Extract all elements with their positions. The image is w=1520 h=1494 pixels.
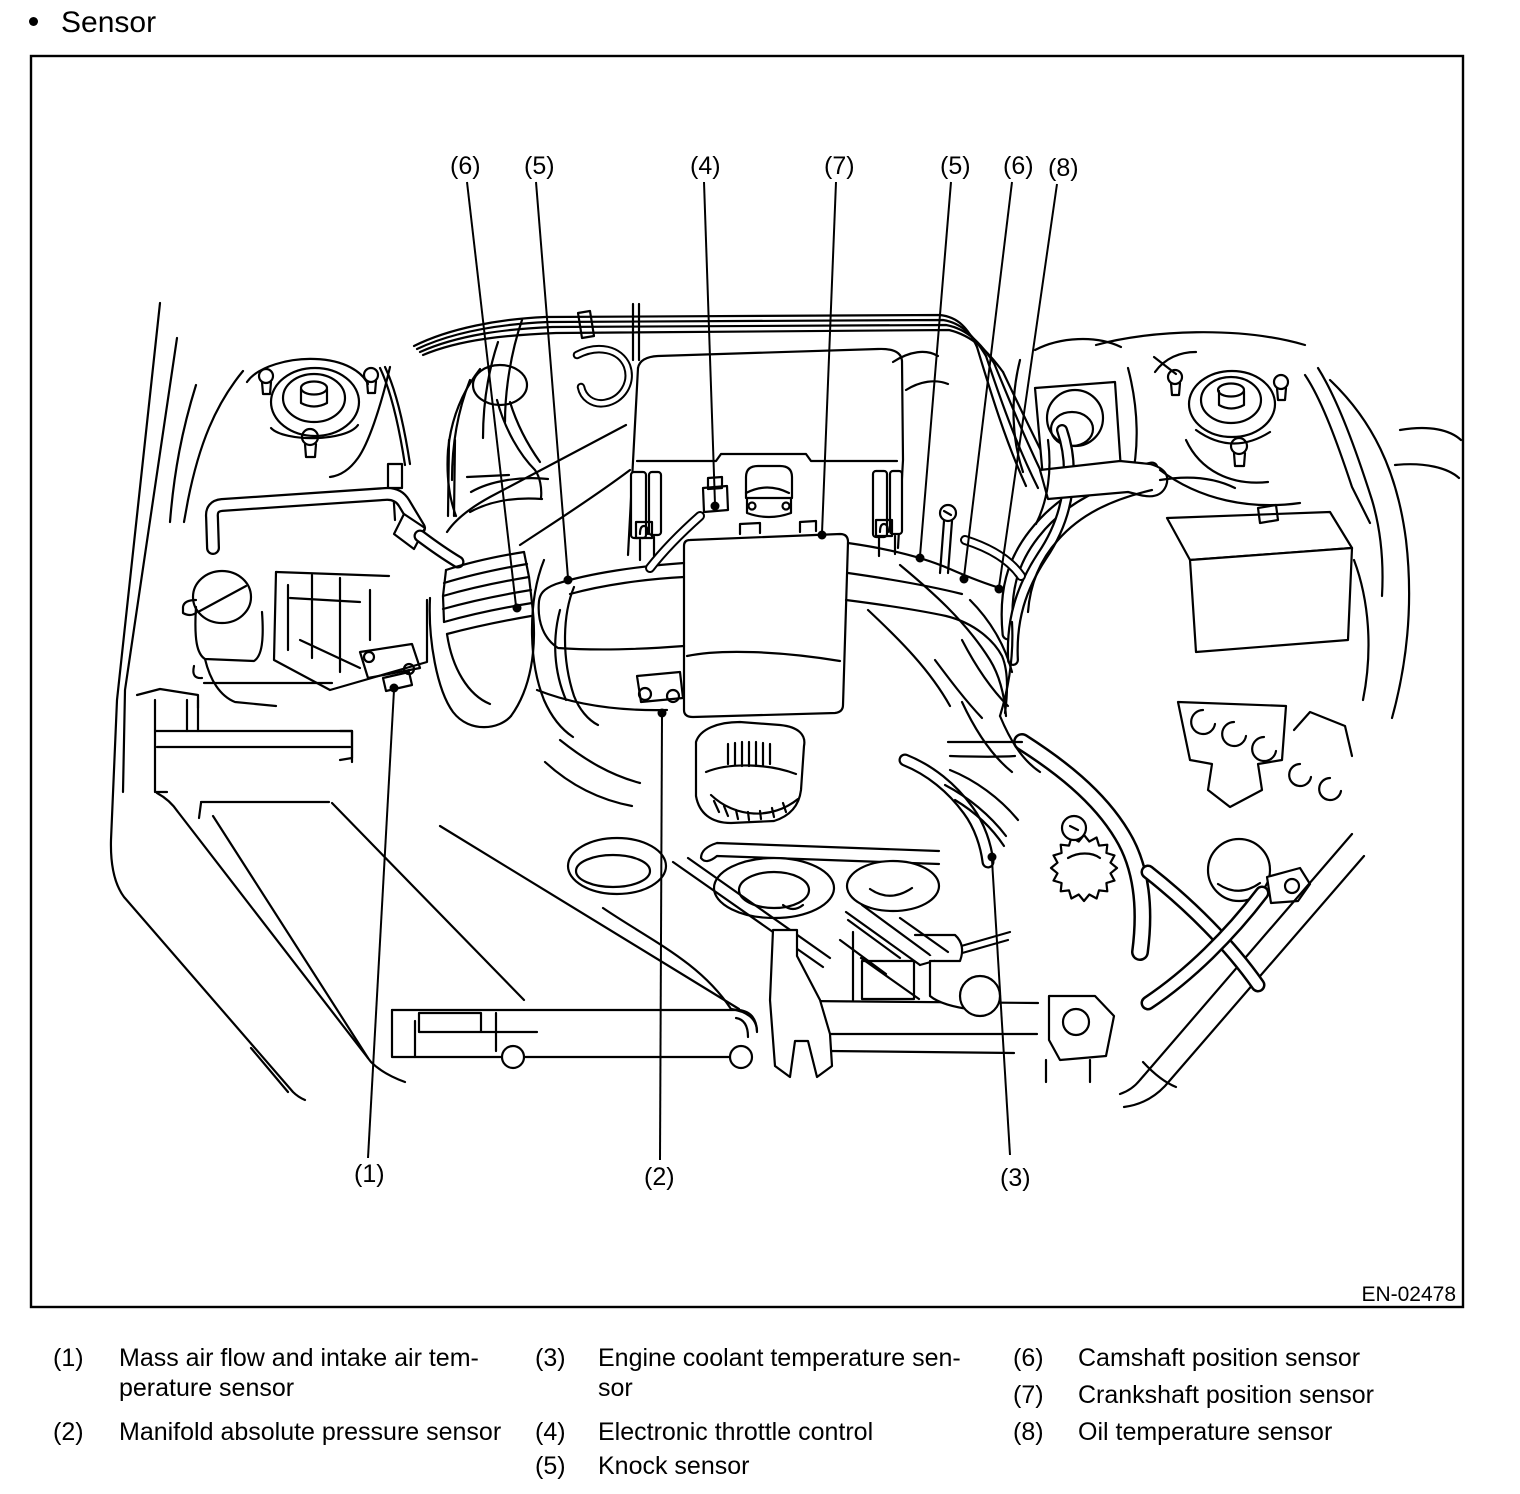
svg-text:(7): (7): [824, 152, 855, 180]
svg-text:perature sensor: perature sensor: [119, 1374, 294, 1402]
svg-text:(6): (6): [1003, 152, 1034, 180]
svg-text:(8): (8): [1048, 154, 1079, 182]
svg-text:Electronic throttle control: Electronic throttle control: [598, 1418, 873, 1446]
svg-text:(5): (5): [524, 152, 555, 180]
svg-text:(2): (2): [644, 1163, 675, 1191]
svg-text:(6): (6): [1013, 1344, 1044, 1372]
svg-text:(5): (5): [535, 1452, 566, 1480]
svg-text:Manifold absolute pressure sen: Manifold absolute pressure sensor: [119, 1418, 501, 1446]
svg-text:(6): (6): [450, 152, 481, 180]
svg-text:(5): (5): [940, 152, 971, 180]
svg-text:Mass air flow and intake air t: Mass air flow and intake air tem-: [119, 1344, 479, 1372]
svg-text:(8): (8): [1013, 1418, 1044, 1446]
svg-text:(3): (3): [1000, 1164, 1031, 1192]
svg-text:(7): (7): [1013, 1381, 1044, 1409]
svg-text:Camshaft position sensor: Camshaft position sensor: [1078, 1344, 1360, 1372]
svg-text:Sensor: Sensor: [61, 6, 156, 39]
svg-text:(1): (1): [354, 1160, 385, 1188]
svg-text:Engine coolant temperature sen: Engine coolant temperature sen-: [598, 1344, 961, 1372]
svg-text:EN-02478: EN-02478: [1361, 1283, 1456, 1306]
svg-text:(1): (1): [53, 1344, 84, 1372]
svg-text:(4): (4): [535, 1418, 566, 1446]
svg-text:Oil temperature sensor: Oil temperature sensor: [1078, 1418, 1332, 1446]
svg-text:(4): (4): [690, 152, 721, 180]
svg-text:sor: sor: [598, 1374, 633, 1402]
svg-text:Crankshaft position sensor: Crankshaft position sensor: [1078, 1381, 1374, 1409]
svg-text:Knock sensor: Knock sensor: [598, 1452, 749, 1480]
svg-text:(2): (2): [53, 1418, 84, 1446]
svg-text:(3): (3): [535, 1344, 566, 1372]
